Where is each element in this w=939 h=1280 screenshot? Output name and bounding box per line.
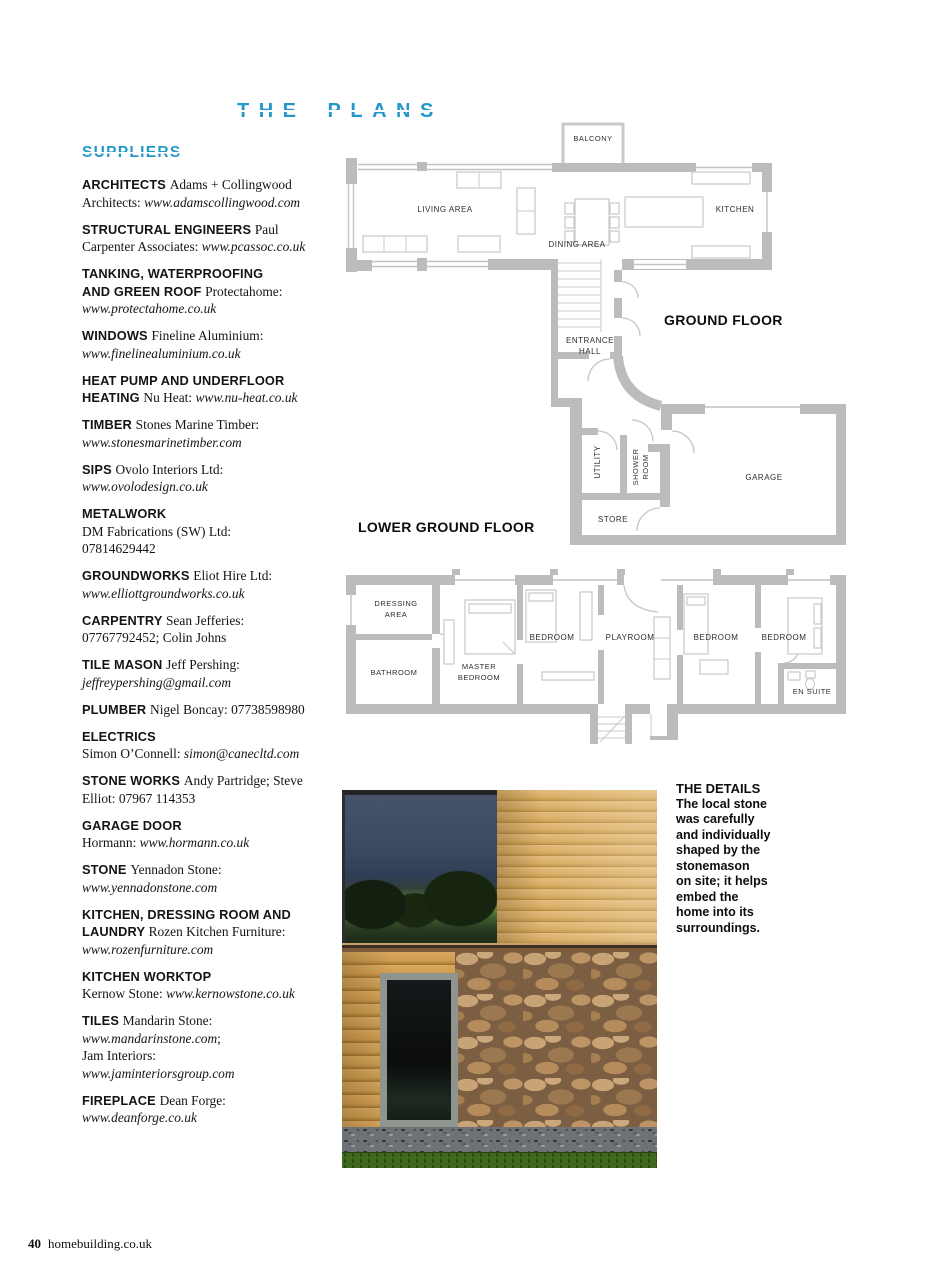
supplier-category: FIREPLACE xyxy=(82,1093,160,1108)
supplier-detail: Hormann: xyxy=(82,835,140,850)
supplier-detail: Mandarin Stone: xyxy=(123,1013,213,1028)
supplier-detail: 07814629442 xyxy=(82,541,156,556)
supplier-category: STRUCTURAL ENGINEERS xyxy=(82,222,255,237)
supplier-detail: Nigel Boncay: 07738598980 xyxy=(150,702,305,717)
supplier-entry: TILE MASON Jeff Pershing:jeffreypershing… xyxy=(82,656,327,691)
supplier-detail: Rozen Kitchen Furniture: xyxy=(149,924,286,939)
photo-window-reflection xyxy=(342,790,497,943)
floor-plans: BALCONY xyxy=(340,115,860,785)
supplier-entry: METALWORKDM Fabrications (SW) Ltd:078146… xyxy=(82,505,327,558)
supplier-entry: SIPS Ovolo Interiors Ltd:www.ovolodesign… xyxy=(82,461,327,496)
supplier-category: GARAGE DOOR xyxy=(82,818,182,833)
supplier-category: KITCHEN, DRESSING ROOM AND xyxy=(82,907,291,922)
page-footer: 40homebuilding.co.uk xyxy=(28,1236,152,1252)
kitchen-label: KITCHEN xyxy=(716,205,755,214)
supplier-category: STONE WORKS xyxy=(82,773,184,788)
supplier-category: TILE MASON xyxy=(82,657,166,672)
supplier-entry: TILES Mandarin Stone:www.mandarinstone.c… xyxy=(82,1012,327,1082)
supplier-detail: 07767792452; Colin Johns xyxy=(82,630,226,645)
supplier-category: AND GREEN ROOF xyxy=(82,284,205,299)
supplier-entry: GROUNDWORKS Eliot Hire Ltd:www.elliottgr… xyxy=(82,567,327,602)
lower-ground-floor-title: LOWER GROUND FLOOR xyxy=(358,519,535,535)
photo-doorway xyxy=(380,973,458,1127)
supplier-entry: TANKING, WATERPROOFINGAND GREEN ROOF Pro… xyxy=(82,265,327,318)
supplier-entry: KITCHEN WORKTOPKernow Stone: www.kernows… xyxy=(82,968,327,1003)
supplier-entry: ARCHITECTS Adams + Collingwood Architect… xyxy=(82,176,327,211)
magazine-page: THE PLANS SUPPLIERS ARCHITECTS Adams + C… xyxy=(0,0,939,1280)
supplier-detail: Elliot: 07967 114353 xyxy=(82,791,195,806)
lower-floor-walls xyxy=(346,569,846,744)
supplier-detail: simon@canecltd.com xyxy=(184,746,299,761)
supplier-category: HEAT PUMP AND UNDERFLOOR xyxy=(82,373,284,388)
supplier-detail: www.finelinealuminium.co.uk xyxy=(82,346,241,361)
supplier-entry: GARAGE DOORHormann: www.hormann.co.uk xyxy=(82,817,327,852)
living-area-label: LIVING AREA xyxy=(417,205,472,214)
page-number: 40 xyxy=(28,1236,41,1251)
store-label: STORE xyxy=(598,515,628,524)
supplier-detail: Kernow Stone: xyxy=(82,986,166,1001)
supplier-detail: Fineline Aluminium: xyxy=(151,328,263,343)
site-name: homebuilding.co.uk xyxy=(48,1236,152,1251)
bedroom-4-label: BEDROOM xyxy=(762,633,807,642)
master-bedroom-label-line2: BEDROOM xyxy=(458,673,500,682)
suppliers-list: ARCHITECTS Adams + Collingwood Architect… xyxy=(82,176,327,1136)
supplier-entry: HEAT PUMP AND UNDERFLOORHEATING Nu Heat:… xyxy=(82,372,327,407)
supplier-category: KITCHEN WORKTOP xyxy=(82,969,211,984)
supplier-detail: www.nu-heat.co.uk xyxy=(195,390,297,405)
supplier-category: WINDOWS xyxy=(82,328,151,343)
details-body: The local stone was carefully and indivi… xyxy=(676,797,798,937)
dining-area-label: DINING AREA xyxy=(548,240,605,249)
dressing-area-label-line2: AREA xyxy=(385,610,407,619)
supplier-detail: Yennadon Stone: xyxy=(130,862,221,877)
photo-gravel-strip xyxy=(342,1127,657,1152)
supplier-detail: www.yennadonstone.com xyxy=(82,880,217,895)
supplier-detail: Jeff Pershing: xyxy=(166,657,240,672)
supplier-detail: www.adamscollingwood.com xyxy=(144,195,300,210)
supplier-detail: Sean Jefferies: xyxy=(166,613,244,628)
photo-timber-cladding-upper xyxy=(497,790,657,943)
supplier-category: TIMBER xyxy=(82,417,136,432)
supplier-detail: Nu Heat: xyxy=(143,390,195,405)
bedroom-3-label: BEDROOM xyxy=(694,633,739,642)
suppliers-heading: SUPPLIERS xyxy=(82,144,182,162)
supplier-category: TANKING, WATERPROOFING xyxy=(82,266,263,281)
supplier-detail: www.deanforge.co.uk xyxy=(82,1110,197,1125)
supplier-detail: ; xyxy=(217,1031,221,1046)
supplier-detail: Stones Marine Timber: xyxy=(136,417,260,432)
entrance-hall-label-line1: ENTRANCE xyxy=(566,336,614,345)
supplier-entry: PLUMBER Nigel Boncay: 07738598980 xyxy=(82,701,327,719)
supplier-detail: www.ovolodesign.co.uk xyxy=(82,479,208,494)
dressing-area-label-line1: DRESSING xyxy=(374,599,417,608)
supplier-entry: STONE Yennadon Stone:www.yennadonstone.c… xyxy=(82,861,327,896)
supplier-detail: DM Fabrications (SW) Ltd: xyxy=(82,524,231,539)
supplier-entry: CARPENTRY Sean Jefferies:07767792452; Co… xyxy=(82,612,327,647)
supplier-detail: Dean Forge: xyxy=(160,1093,226,1108)
supplier-entry: TIMBER Stones Marine Timber:www.stonesma… xyxy=(82,416,327,451)
supplier-category: GROUNDWORKS xyxy=(82,568,193,583)
supplier-entry: FIREPLACE Dean Forge:www.deanforge.co.uk xyxy=(82,1092,327,1127)
supplier-category: STONE xyxy=(82,862,130,877)
playroom-label: PLAYROOM xyxy=(606,633,655,642)
garage-label: GARAGE xyxy=(745,473,782,482)
photo-floor-band xyxy=(342,943,657,952)
supplier-detail: Ovolo Interiors Ltd: xyxy=(115,462,223,477)
details-sidebar: THE DETAILS The local stone was carefull… xyxy=(676,781,798,936)
supplier-category: SIPS xyxy=(82,462,115,477)
supplier-detail: Protectahome: xyxy=(205,284,282,299)
supplier-detail: www.kernowstone.co.uk xyxy=(166,986,295,1001)
supplier-entry: KITCHEN, DRESSING ROOM ANDLAUNDRY Rozen … xyxy=(82,906,327,959)
supplier-detail: www.stonesmarinetimber.com xyxy=(82,435,242,450)
balcony-outline xyxy=(563,124,623,165)
entrance-hall-label-line2: HALL xyxy=(579,347,601,356)
exterior-photo xyxy=(342,790,657,1167)
supplier-detail: Jam Interiors: xyxy=(82,1048,156,1063)
supplier-entry: STONE WORKS Andy Partridge; SteveElliot:… xyxy=(82,772,327,807)
supplier-category: ELECTRICS xyxy=(82,729,156,744)
supplier-detail: www.elliottgroundworks.co.uk xyxy=(82,586,245,601)
supplier-category: TILES xyxy=(82,1013,123,1028)
supplier-detail: www.mandarinstone.com xyxy=(82,1031,217,1046)
ground-floor-plan: BALCONY xyxy=(346,124,846,545)
bedroom-2-label: BEDROOM xyxy=(530,633,575,642)
supplier-category: CARPENTRY xyxy=(82,613,166,628)
supplier-detail: www.hormann.co.uk xyxy=(140,835,249,850)
supplier-detail: www.pcassoc.co.uk xyxy=(202,239,306,254)
photo-stone-wall xyxy=(455,952,657,1127)
details-heading: THE DETAILS xyxy=(676,781,798,797)
supplier-detail: jeffreypershing@gmail.com xyxy=(82,675,231,690)
supplier-category: HEATING xyxy=(82,390,143,405)
supplier-entry: WINDOWS Fineline Aluminium:www.finelinea… xyxy=(82,327,327,362)
supplier-detail: Eliot Hire Ltd: xyxy=(193,568,272,583)
balcony-label: BALCONY xyxy=(573,134,612,143)
supplier-entry: STRUCTURAL ENGINEERS Paul Carpenter Asso… xyxy=(82,221,327,256)
shower-room-label-line1: SHOWER xyxy=(631,449,640,486)
photo-grass-strip xyxy=(342,1152,657,1168)
master-bedroom-label-line1: MASTER xyxy=(462,662,496,671)
bathroom-label: BATHROOM xyxy=(371,668,418,677)
supplier-category: PLUMBER xyxy=(82,702,150,717)
shower-room-label-line2: ROOM xyxy=(641,454,650,479)
supplier-detail: www.rozenfurniture.com xyxy=(82,942,213,957)
supplier-detail: Simon O’Connell: xyxy=(82,746,184,761)
utility-label: UTILITY xyxy=(593,445,602,478)
lower-floor-stairs xyxy=(598,714,651,742)
supplier-detail: www.jaminteriorsgroup.com xyxy=(82,1066,235,1081)
supplier-category: ARCHITECTS xyxy=(82,177,170,192)
supplier-category: METALWORK xyxy=(82,506,166,521)
ground-floor-title: GROUND FLOOR xyxy=(664,312,783,328)
supplier-detail: www.protectahome.co.uk xyxy=(82,301,216,316)
supplier-category: LAUNDRY xyxy=(82,924,149,939)
en-suite-label: EN SUITE xyxy=(793,687,832,696)
curved-wall xyxy=(618,356,661,406)
supplier-detail: Andy Partridge; Steve xyxy=(184,773,303,788)
lower-ground-floor-plan: LOWER GROUND FLOOR xyxy=(346,519,846,744)
supplier-entry: ELECTRICSSimon O’Connell: simon@canecltd… xyxy=(82,728,327,763)
ground-floor-stairs xyxy=(558,259,601,332)
